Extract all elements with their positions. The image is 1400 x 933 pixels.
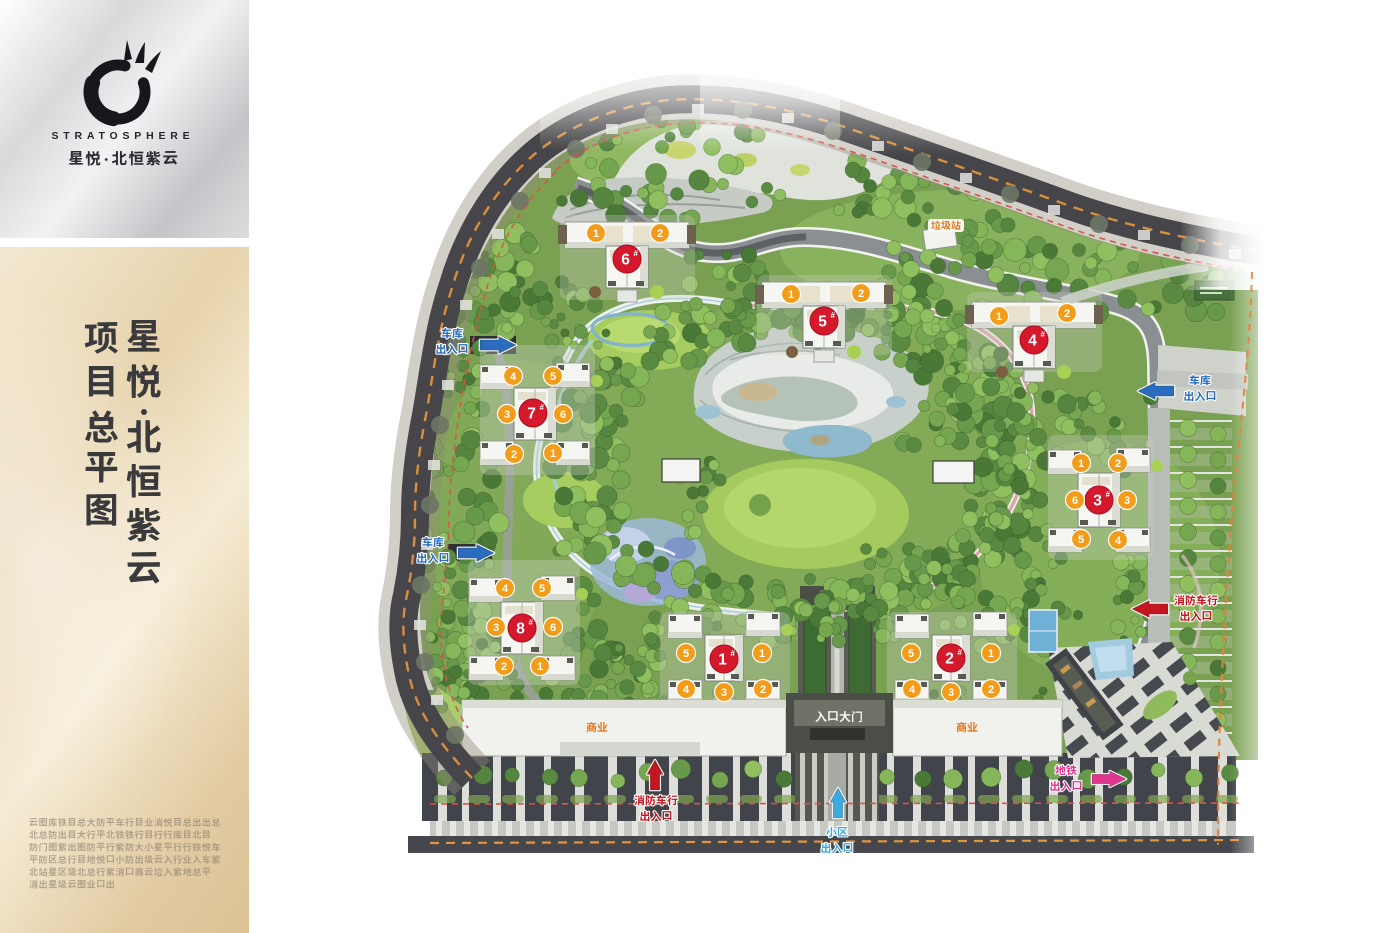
svg-text:4: 4 [909, 684, 916, 696]
svg-text:#: # [831, 311, 836, 320]
svg-text:1: 1 [1078, 458, 1084, 470]
svg-text:5: 5 [818, 314, 827, 331]
svg-text:2: 2 [858, 288, 864, 300]
svg-text:6: 6 [1072, 495, 1078, 507]
svg-text:1: 1 [788, 289, 794, 301]
svg-text:3: 3 [493, 622, 499, 634]
svg-text:#: # [634, 249, 639, 258]
svg-text:5: 5 [908, 648, 914, 660]
svg-text:2: 2 [945, 651, 954, 668]
svg-text:#: # [731, 649, 736, 658]
svg-text:4: 4 [510, 371, 517, 383]
svg-text:1: 1 [996, 311, 1002, 323]
svg-text:7: 7 [527, 406, 536, 423]
svg-text:4: 4 [1028, 333, 1037, 350]
svg-text:2: 2 [760, 684, 766, 696]
svg-text:2: 2 [657, 228, 663, 240]
svg-text:8: 8 [516, 621, 525, 638]
svg-text:#: # [529, 618, 534, 627]
svg-text:4: 4 [683, 684, 690, 696]
svg-text:2: 2 [501, 661, 507, 673]
svg-text:6: 6 [621, 252, 630, 269]
svg-text:4: 4 [1115, 535, 1122, 547]
svg-text:5: 5 [550, 371, 556, 383]
svg-text:1: 1 [537, 661, 543, 673]
svg-text:6: 6 [560, 409, 566, 421]
svg-text:#: # [1041, 330, 1046, 339]
svg-text:1: 1 [593, 228, 599, 240]
svg-text:4: 4 [502, 583, 509, 595]
svg-text:3: 3 [948, 687, 954, 699]
svg-text:3: 3 [721, 687, 727, 699]
svg-text:2: 2 [988, 684, 994, 696]
svg-text:2: 2 [1064, 308, 1070, 320]
svg-text:5: 5 [1078, 534, 1084, 546]
svg-text:#: # [958, 648, 963, 657]
svg-text:5: 5 [539, 583, 545, 595]
svg-text:#: # [540, 403, 545, 412]
svg-text:6: 6 [550, 622, 556, 634]
svg-text:3: 3 [504, 409, 510, 421]
svg-text:1: 1 [988, 648, 994, 660]
svg-text:3: 3 [1093, 493, 1102, 510]
svg-text:#: # [1106, 490, 1111, 499]
svg-text:1: 1 [759, 648, 765, 660]
svg-text:5: 5 [683, 648, 689, 660]
svg-text:3: 3 [1124, 495, 1130, 507]
svg-text:2: 2 [511, 449, 517, 461]
svg-text:1: 1 [718, 652, 727, 669]
svg-text:1: 1 [550, 448, 556, 460]
svg-text:2: 2 [1115, 458, 1121, 470]
